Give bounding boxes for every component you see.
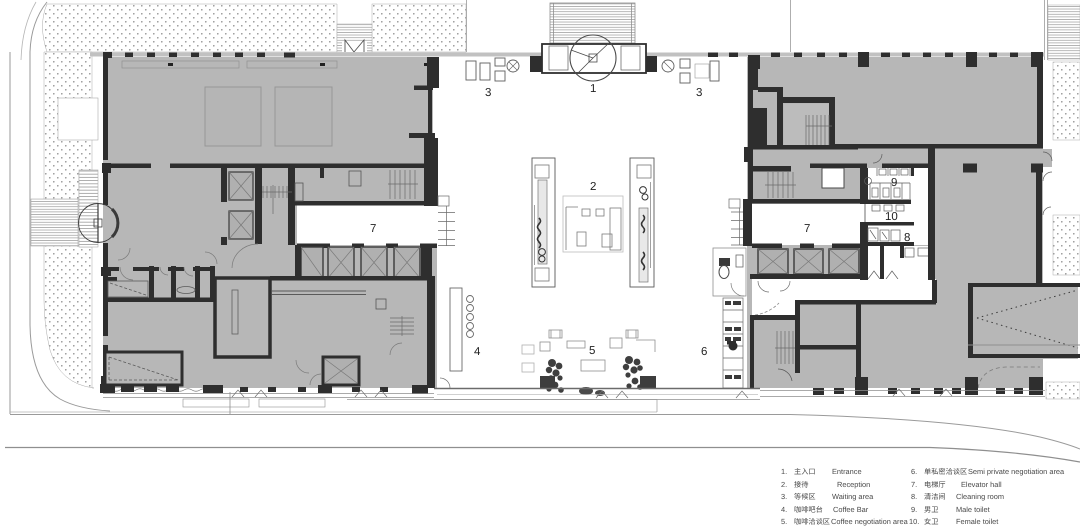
svg-text:10.: 10. [909,517,919,526]
svg-text:男卫: 男卫 [924,505,938,514]
svg-text:Coffee Bar: Coffee Bar [833,505,869,514]
svg-text:1: 1 [590,83,596,95]
svg-text:9: 9 [891,177,897,189]
svg-text:Waiting area: Waiting area [832,492,874,501]
svg-text:7: 7 [804,223,810,235]
svg-text:3: 3 [696,87,702,99]
svg-text:接待: 接待 [794,480,808,489]
svg-text:4: 4 [474,346,481,358]
svg-text:2.: 2. [781,480,787,489]
svg-text:2: 2 [590,181,596,193]
svg-text:Female toilet: Female toilet [956,517,998,526]
svg-text:6: 6 [701,346,707,358]
svg-text:1.: 1. [781,467,787,476]
svg-text:8.: 8. [911,492,917,501]
svg-text:Cleaning room: Cleaning room [956,492,1004,501]
svg-text:咖啡吧台: 咖啡吧台 [794,505,823,514]
svg-text:8: 8 [904,232,910,244]
svg-text:9.: 9. [911,505,917,514]
svg-text:女卫: 女卫 [924,517,938,526]
svg-text:Elevator hall: Elevator hall [961,480,1002,489]
svg-text:3.: 3. [781,492,787,501]
svg-text:Semi private negotiation area: Semi private negotiation area [968,467,1065,476]
svg-text:单私密洽谈区: 单私密洽谈区 [924,467,967,476]
svg-text:Reception: Reception [837,480,870,489]
svg-text:Entrance: Entrance [832,467,862,476]
svg-text:电梯厅: 电梯厅 [924,480,946,489]
svg-text:Male toilet: Male toilet [956,505,990,514]
svg-text:5.: 5. [781,517,787,526]
svg-text:7.: 7. [911,480,917,489]
svg-text:5: 5 [589,345,595,357]
svg-text:清洁间: 清洁间 [924,492,946,501]
svg-text:等候区: 等候区 [794,492,816,501]
svg-text:10: 10 [885,211,898,223]
svg-text:3: 3 [485,87,491,99]
svg-text:咖啡洽谈区: 咖啡洽谈区 [794,517,830,526]
svg-text:7: 7 [370,223,376,235]
svg-text:Coffee negotiation area: Coffee negotiation area [831,517,909,526]
svg-text:6.: 6. [911,467,917,476]
svg-text:主入口: 主入口 [794,467,816,476]
svg-text:4.: 4. [781,505,787,514]
